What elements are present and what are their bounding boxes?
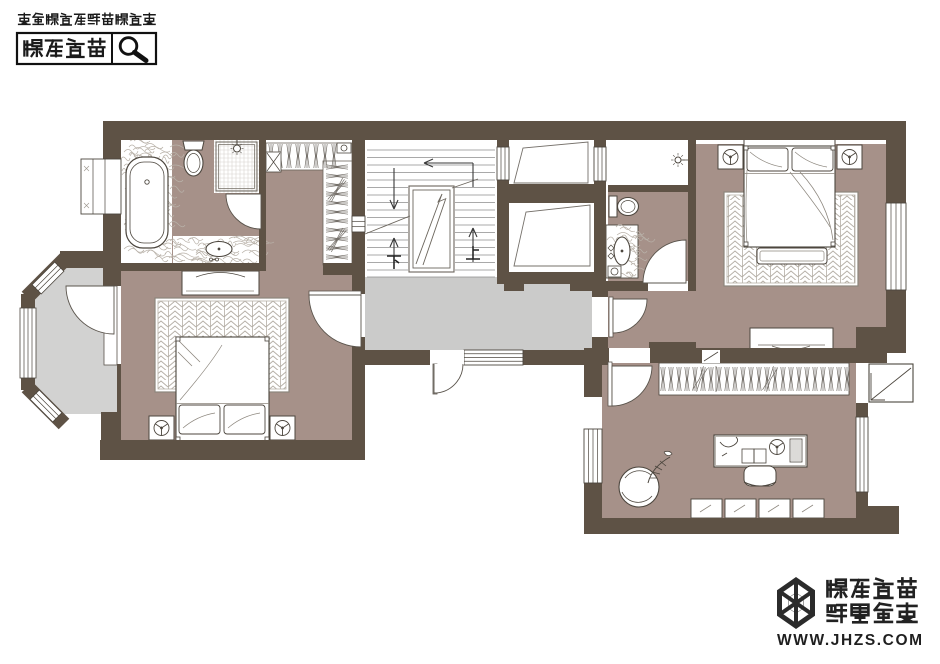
svg-text:WWW.JHZS.COM: WWW.JHZS.COM <box>777 632 924 649</box>
